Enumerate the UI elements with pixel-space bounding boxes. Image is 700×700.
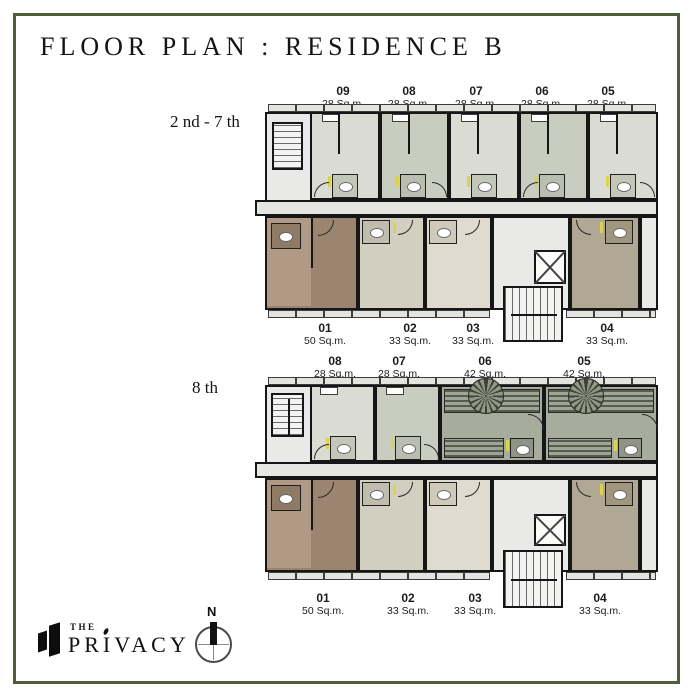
compass: N [0, 0, 700, 700]
north-label: N [207, 604, 216, 619]
floor-plan-page: FLOOR PLAN : RESIDENCE B 2 nd - 7 th 09 … [0, 0, 700, 700]
compass-needle-icon [210, 622, 217, 645]
